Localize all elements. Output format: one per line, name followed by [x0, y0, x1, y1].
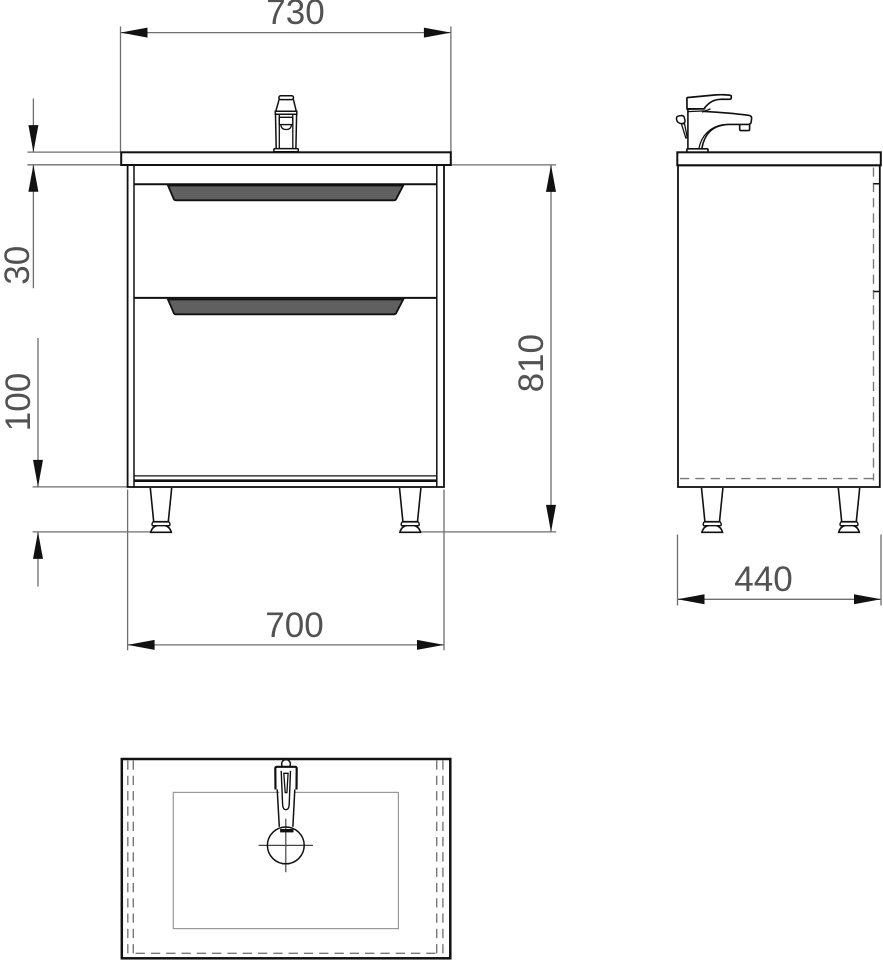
svg-text:100: 100 — [0, 373, 38, 431]
svg-text:730: 730 — [266, 0, 324, 32]
svg-text:440: 440 — [734, 560, 792, 599]
svg-text:810: 810 — [512, 334, 551, 392]
svg-text:700: 700 — [265, 606, 323, 645]
svg-text:30: 30 — [0, 246, 37, 285]
